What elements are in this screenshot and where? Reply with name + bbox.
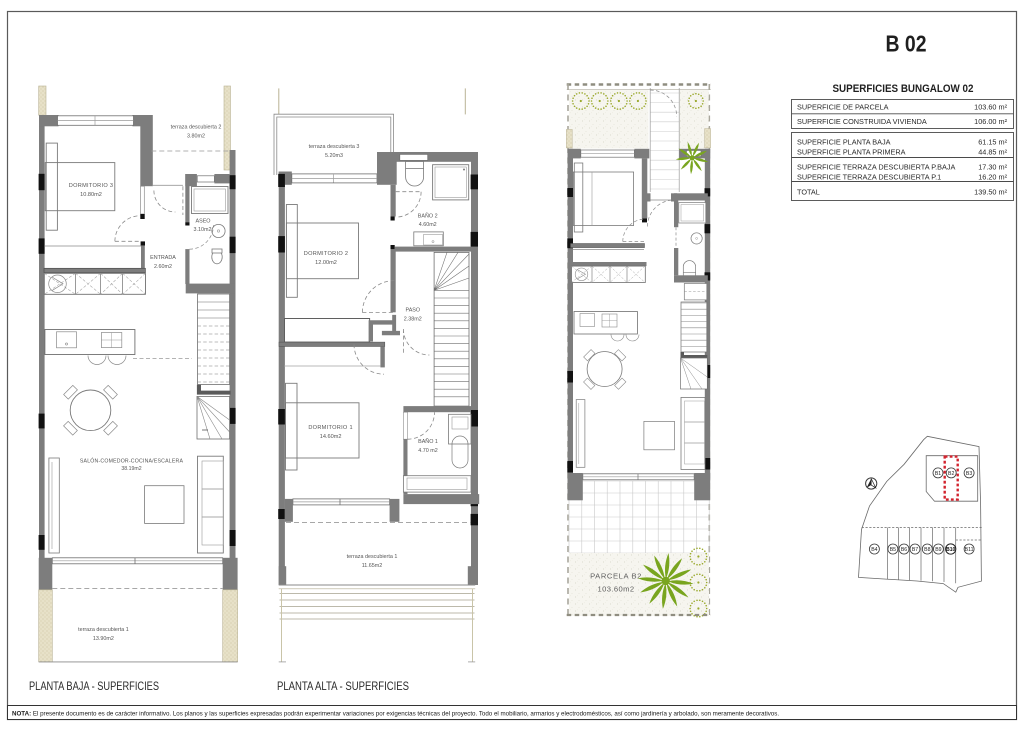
svg-text:103.60m2: 103.60m2: [598, 585, 635, 594]
svg-text:SALÓN-COMEDOR-COCINA/ESCALERA: SALÓN-COMEDOR-COCINA/ESCALERA: [80, 458, 184, 465]
svg-text:10.80m2: 10.80m2: [80, 192, 102, 198]
svg-text:DORMITORIO 1: DORMITORIO 1: [308, 425, 353, 431]
svg-text:SUPERFICIE DE PARCELA: SUPERFICIE DE PARCELA: [797, 103, 889, 112]
svg-text:11.65m2: 11.65m2: [362, 563, 383, 569]
svg-text:2.60m2: 2.60m2: [154, 264, 172, 270]
svg-text:12.00m2: 12.00m2: [315, 260, 337, 266]
svg-text:BAÑO 1: BAÑO 1: [418, 438, 438, 445]
svg-text:B9: B9: [935, 547, 941, 553]
svg-text:SUPERFICIES BUNGALOW 02: SUPERFICIES BUNGALOW 02: [833, 83, 974, 95]
svg-text:14.60m2: 14.60m2: [320, 434, 342, 440]
svg-text:DORMITORIO 3: DORMITORIO 3: [69, 183, 114, 189]
svg-text:NOTA: El presente documento e: NOTA: El presente documento es de caráct…: [12, 711, 779, 718]
svg-text:SUPERFICIE CONSTRUIDA VIVIENDA: SUPERFICIE CONSTRUIDA VIVIENDA: [797, 117, 927, 126]
svg-text:TOTAL: TOTAL: [797, 188, 820, 197]
svg-text:4.70 m2: 4.70 m2: [418, 448, 437, 454]
svg-text:B4: B4: [871, 547, 877, 553]
svg-text:SUPERFICIE TERRAZA DESCUBIERTA: SUPERFICIE TERRAZA DESCUBIERTA P.1: [797, 173, 941, 182]
svg-text:B 02: B 02: [886, 31, 927, 57]
svg-text:B1: B1: [935, 471, 941, 477]
svg-text:4.60m2: 4.60m2: [419, 222, 437, 228]
svg-text:B3: B3: [966, 471, 972, 477]
svg-text:ENTRADA: ENTRADA: [150, 255, 176, 261]
svg-text:PLANTA BAJA - SUPERFICIES: PLANTA BAJA - SUPERFICIES: [29, 679, 159, 693]
svg-text:BAÑO 2: BAÑO 2: [418, 213, 438, 220]
svg-text:103.60 m²: 103.60 m²: [974, 103, 1007, 112]
svg-text:17.30 m²: 17.30 m²: [978, 163, 1007, 172]
svg-text:ASEO: ASEO: [196, 219, 211, 225]
svg-text:2.38m2: 2.38m2: [404, 317, 422, 323]
svg-text:B7: B7: [912, 547, 918, 553]
svg-text:3.80m2: 3.80m2: [187, 134, 205, 140]
svg-text:PLANTA ALTA - SUPERFICIES: PLANTA ALTA - SUPERFICIES: [277, 679, 409, 693]
svg-text:SUPERFICIE PLANTA PRIMERA: SUPERFICIE PLANTA PRIMERA: [797, 148, 906, 157]
svg-text:61.15 m²: 61.15 m²: [978, 138, 1007, 147]
svg-text:DORMITORIO 2: DORMITORIO 2: [304, 251, 349, 257]
svg-text:PARCELA B2: PARCELA B2: [590, 572, 642, 581]
svg-text:B8: B8: [924, 547, 930, 553]
svg-text:44.85 m²: 44.85 m²: [978, 148, 1007, 157]
svg-text:B2: B2: [948, 471, 954, 477]
svg-text:terraza descubierta 1: terraza descubierta 1: [347, 554, 398, 560]
svg-text:SUPERFICIE PLANTA BAJA: SUPERFICIE PLANTA BAJA: [797, 138, 891, 147]
svg-text:terraza descubierta 1: terraza descubierta 1: [78, 627, 129, 633]
svg-text:B5: B5: [890, 547, 896, 553]
svg-text:terraza descubierta 2: terraza descubierta 2: [171, 125, 222, 131]
svg-text:terraza descubierta 3: terraza descubierta 3: [309, 144, 360, 150]
svg-text:B10: B10: [946, 547, 955, 553]
svg-text:5.20m3: 5.20m3: [325, 153, 343, 159]
svg-text:B11: B11: [965, 547, 974, 553]
svg-text:38.19m2: 38.19m2: [121, 466, 141, 472]
svg-text:13.90m2: 13.90m2: [93, 636, 114, 642]
svg-text:PASO: PASO: [406, 308, 421, 314]
svg-text:16.20 m²: 16.20 m²: [978, 173, 1007, 182]
svg-text:B6: B6: [901, 547, 907, 553]
svg-text:SUPERFICIE TERRAZA DESCUBIERTA: SUPERFICIE TERRAZA DESCUBIERTA P.BAJA: [797, 163, 956, 172]
svg-text:106.00 m²: 106.00 m²: [974, 117, 1007, 126]
svg-text:3.10m2: 3.10m2: [194, 227, 212, 233]
svg-text:139.50 m²: 139.50 m²: [974, 188, 1007, 197]
